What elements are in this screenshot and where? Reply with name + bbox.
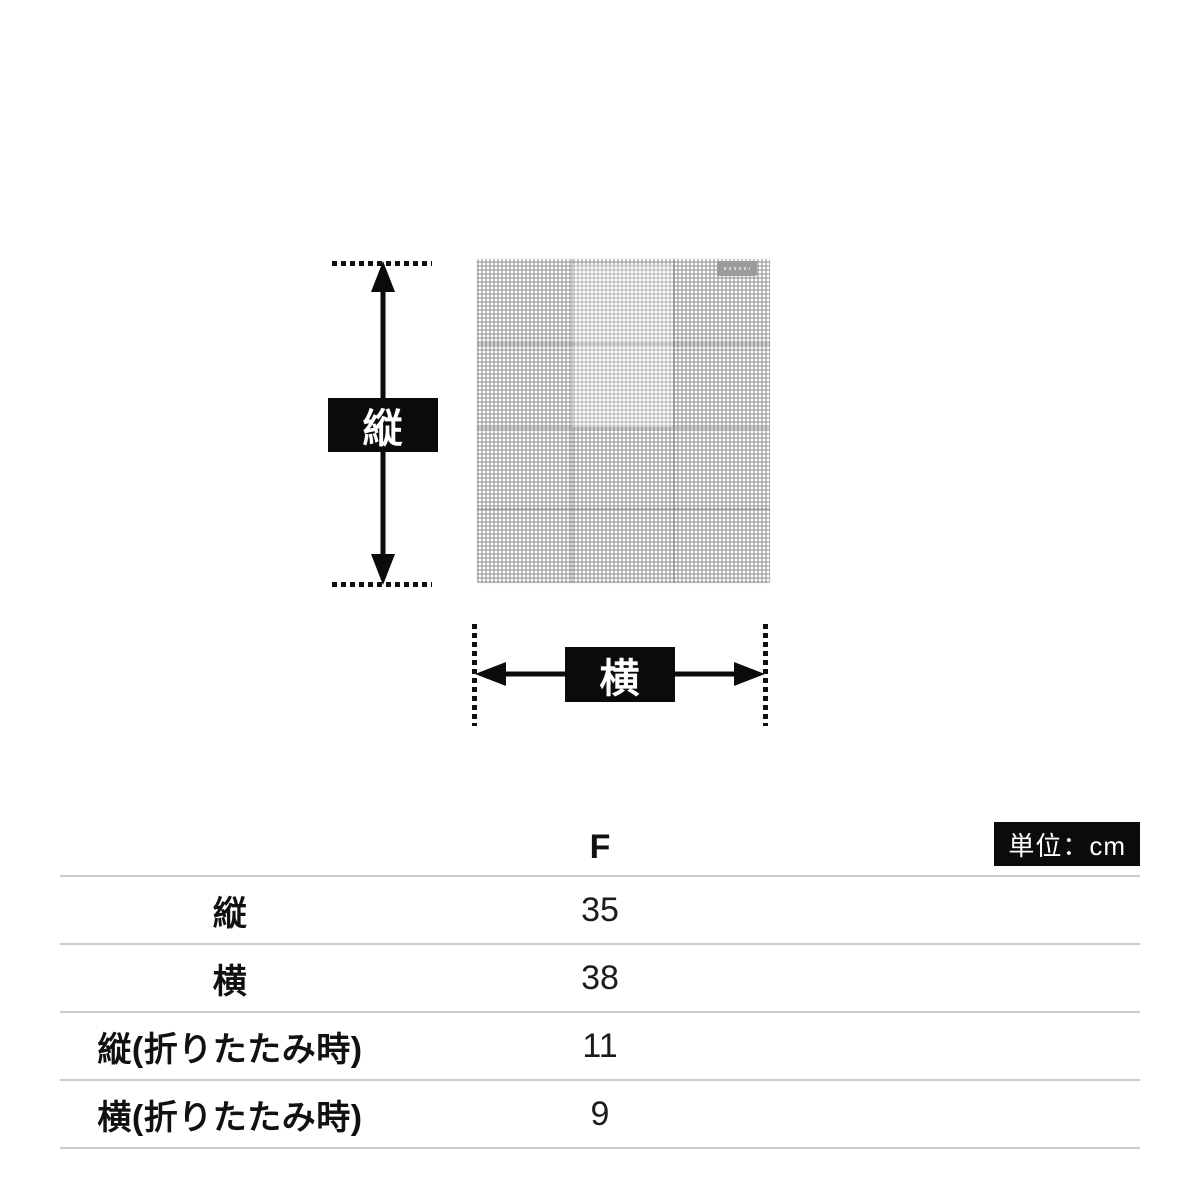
- cloth-crease: [477, 508, 770, 510]
- product-cloth-image: [477, 259, 770, 583]
- row-label: 縦: [60, 886, 400, 935]
- row-value: 35: [400, 891, 800, 930]
- table-header-row: F 単位：cm: [60, 820, 1140, 875]
- row-value: 11: [400, 1027, 800, 1066]
- horizontal-dim-label: 横: [565, 647, 675, 702]
- row-value: 9: [400, 1095, 800, 1134]
- cloth-crease: [477, 343, 770, 345]
- size-table: F 単位：cm 縦 35 横 38 縦(折りたたみ時) 11 横(折りたたみ時)…: [60, 820, 1140, 1149]
- table-row: 横 38: [60, 943, 1140, 1011]
- cloth-crease: [571, 259, 573, 583]
- cloth-crease: [673, 259, 675, 583]
- row-label: 横: [60, 954, 400, 1003]
- size-chart-page: 縦 横 F 単位：cm 縦 35: [0, 0, 1200, 1200]
- row-label: 横(折りたたみ時): [60, 1090, 400, 1139]
- row-value: 38: [400, 959, 800, 998]
- table-row: 縦(折りたたみ時) 11: [60, 1011, 1140, 1079]
- row-label: 縦(折りたたみ時): [60, 1022, 400, 1071]
- cloth-fold-highlight: [571, 265, 674, 427]
- cloth-crease: [477, 427, 770, 429]
- table-row: 横(折りたたみ時) 9: [60, 1079, 1140, 1149]
- size-column-header: F: [400, 820, 800, 875]
- vertical-dim-label: 縦: [328, 398, 438, 452]
- unit-badge: 単位：cm: [994, 822, 1140, 866]
- table-row: 縦 35: [60, 875, 1140, 943]
- brand-tag: [717, 261, 757, 276]
